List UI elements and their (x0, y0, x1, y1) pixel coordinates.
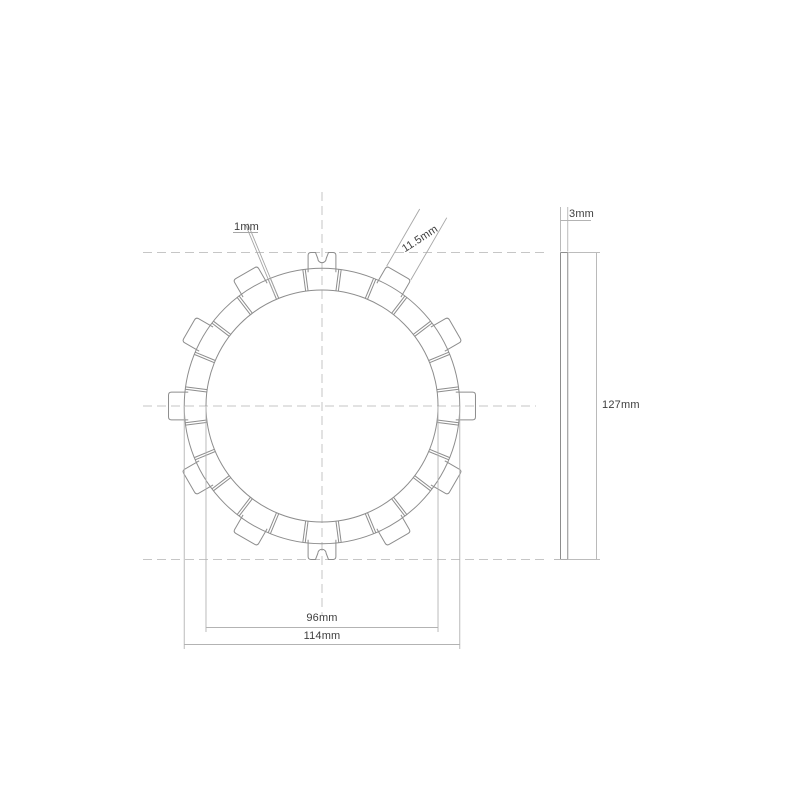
technical-drawing-page: 1mm 11.5mm 3mm 127mm 96mm 114mm (0, 0, 800, 800)
side-view-plate (561, 253, 568, 560)
dim-label-thickness: 3mm (569, 208, 594, 220)
dim-label-outer-diameter: 114mm (304, 630, 341, 642)
clutch-plate-drawing (0, 0, 800, 800)
dim-label-inner-diameter: 96mm (306, 612, 337, 624)
centerlines (143, 192, 549, 616)
dim-label-slot-width: 1mm (234, 221, 259, 233)
slot-width-leader (233, 224, 277, 295)
dim-label-overall-diameter: 127mm (602, 399, 640, 411)
